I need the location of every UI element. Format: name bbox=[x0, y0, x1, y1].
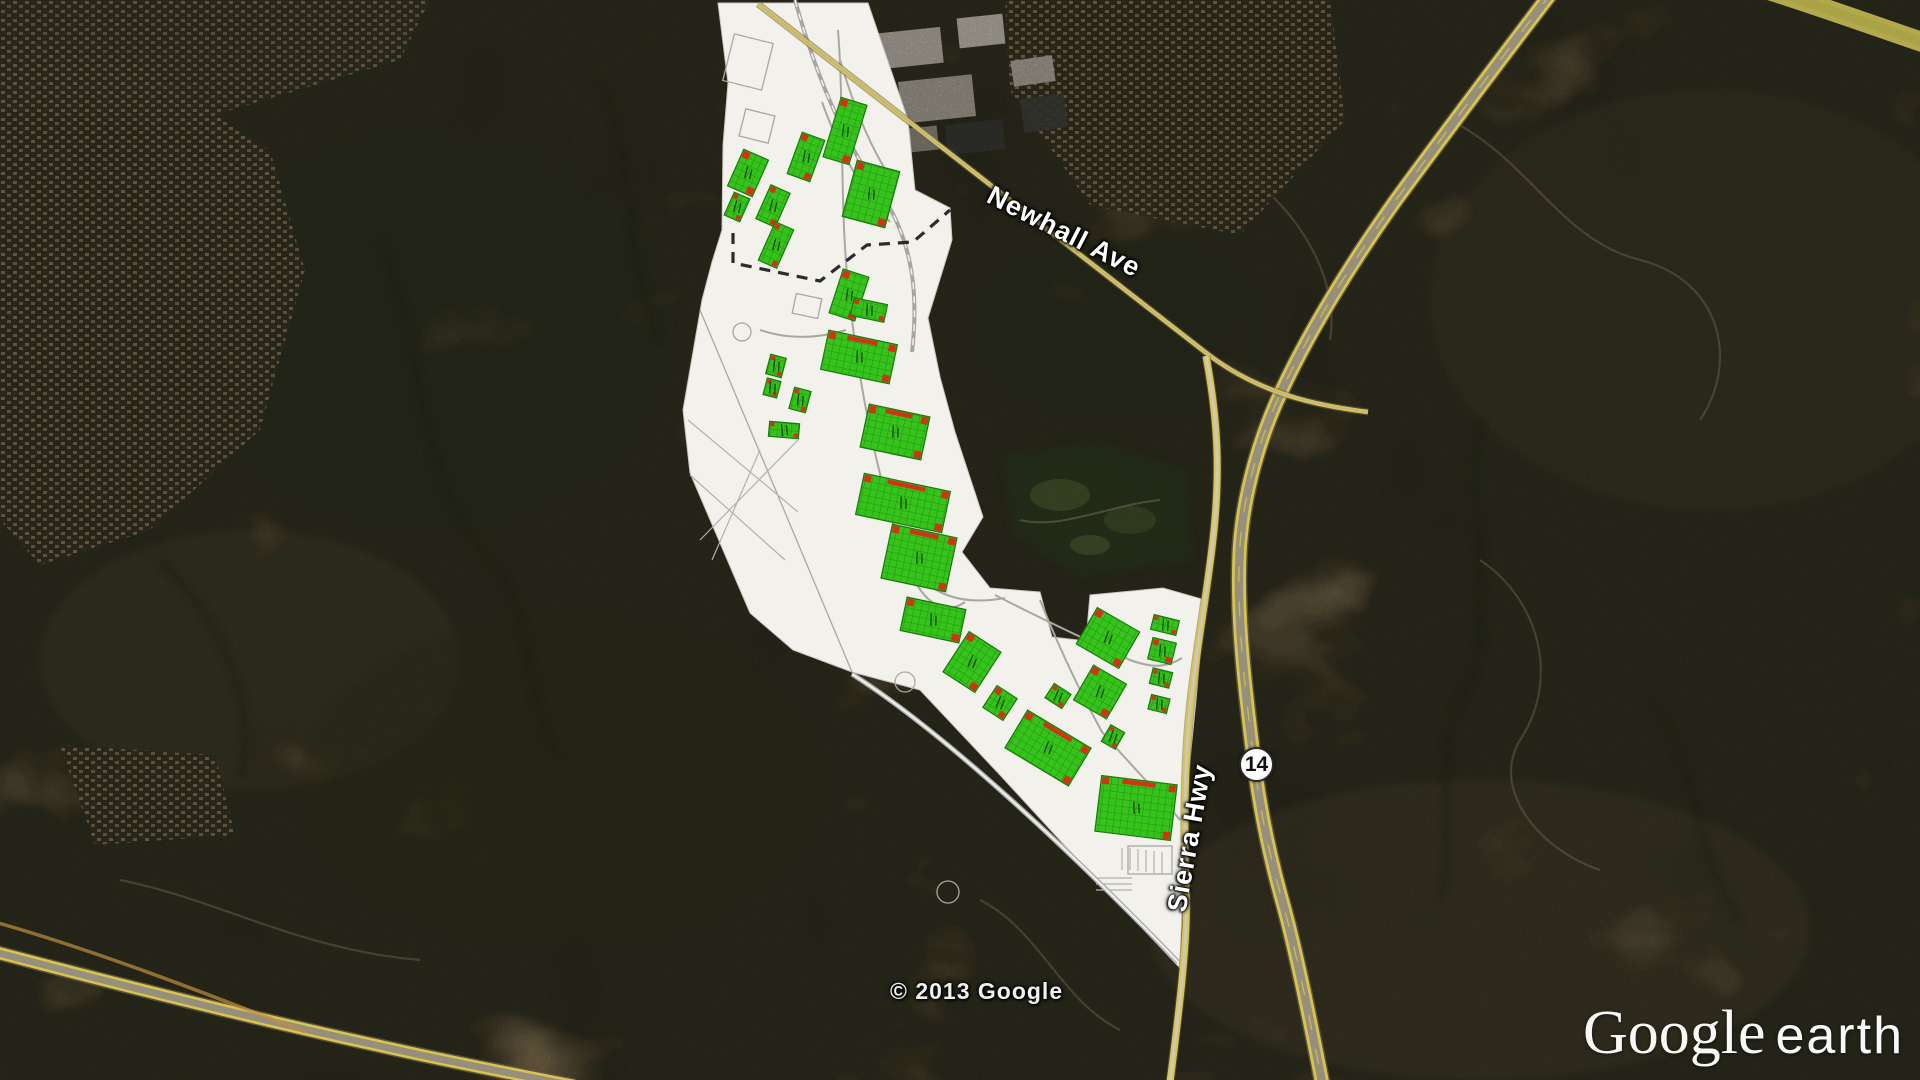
google-earth-logo: Google earth bbox=[1583, 1002, 1904, 1064]
copyright-attribution: © 2013 Google bbox=[890, 978, 1063, 1005]
logo-google-text: Google bbox=[1583, 1002, 1766, 1064]
map-canvas bbox=[0, 0, 1920, 1080]
highway-14-number: 14 bbox=[1245, 753, 1268, 777]
site-building bbox=[1095, 776, 1177, 841]
logo-earth-text: earth bbox=[1775, 1010, 1904, 1062]
highway-14-shield: 14 bbox=[1239, 747, 1274, 782]
google-earth-map-view[interactable]: Newhall Ave Sierra Hwy 14 © 2013 Google … bbox=[0, 0, 1920, 1080]
site-building bbox=[768, 421, 799, 439]
